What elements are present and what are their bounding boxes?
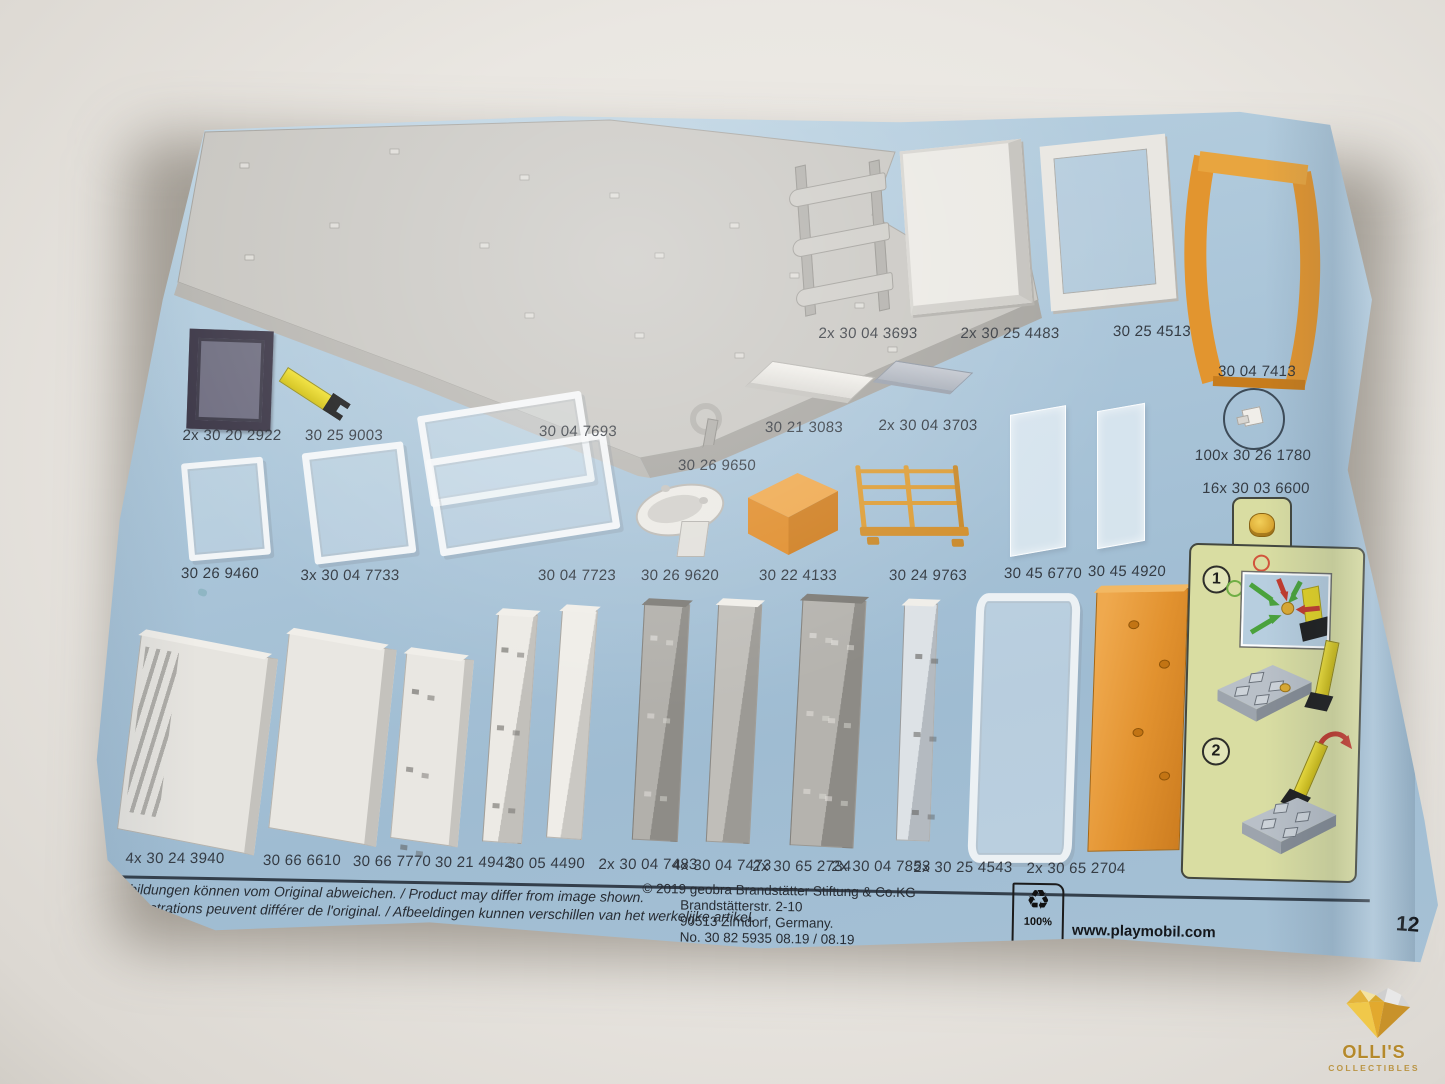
wall-hole bbox=[1132, 728, 1143, 737]
step-2-marker: 2 bbox=[1202, 737, 1231, 766]
part-art-3066-7770 bbox=[390, 651, 474, 848]
part-label-3004-3703: 2x 30 04 3703 bbox=[878, 417, 978, 434]
watermark-title: OLLI'S bbox=[1316, 1042, 1432, 1063]
recycling-symbol: ♻ 100% bbox=[1011, 883, 1064, 946]
wall-hole bbox=[1128, 620, 1139, 629]
part-label-3020-2922: 2x 30 20 2922 bbox=[182, 427, 282, 444]
sink-base bbox=[676, 521, 709, 557]
part-label-3045-4920: 30 45 4920 bbox=[1088, 563, 1167, 580]
clip-marks bbox=[831, 640, 838, 645]
connector-target bbox=[1282, 602, 1294, 614]
pillar-cap bbox=[642, 598, 693, 607]
part-label-3026-9460: 30 26 9460 bbox=[181, 565, 260, 582]
clip-marks bbox=[650, 635, 657, 640]
part-art-3024-9763 bbox=[853, 461, 974, 556]
part-art-3066-6610 bbox=[268, 631, 396, 847]
part-art-3024-3940 bbox=[117, 632, 278, 855]
part-art-3026-9620 bbox=[635, 481, 729, 557]
step-2-base-plate bbox=[1241, 796, 1337, 860]
pillar-cap bbox=[286, 628, 388, 650]
step-2-number: 2 bbox=[1211, 742, 1220, 759]
clip-marks bbox=[501, 647, 508, 652]
part-label-3021-4942: 30 21 4942 bbox=[435, 854, 514, 871]
clip-marks bbox=[412, 689, 419, 695]
step-1-detail-inset bbox=[1241, 572, 1331, 648]
railing-foot bbox=[951, 539, 964, 547]
part-art-3022-4133 bbox=[748, 473, 838, 555]
page-number: 12 bbox=[1395, 912, 1420, 938]
diamond-icon bbox=[1331, 984, 1417, 1042]
sink-faucet-hole bbox=[661, 485, 670, 492]
part-label-3025-9003: 30 25 9003 bbox=[305, 427, 384, 444]
part-label-3026-1780: 100x 30 26 1780 bbox=[1194, 447, 1311, 464]
clip-marks bbox=[915, 654, 922, 659]
watermark-subtitle: COLLECTIBLES bbox=[1316, 1063, 1432, 1073]
part-label-3004-3693: 2x 30 04 3693 bbox=[818, 325, 918, 342]
pillar-cap bbox=[559, 604, 600, 613]
part-art-3026-9460 bbox=[181, 457, 271, 562]
part-art-3026-9650 bbox=[688, 403, 730, 455]
step-1-number: 1 bbox=[1212, 570, 1221, 587]
happy-face-icon bbox=[1226, 580, 1243, 597]
part-label-3045-6770: 30 45 6770 bbox=[1004, 565, 1083, 582]
instruction-sheet-page: 1 bbox=[90, 105, 1438, 970]
pillar-cap bbox=[800, 594, 869, 604]
part-art-3025-4543 bbox=[967, 593, 1080, 863]
part-art-3004-7413 bbox=[1183, 145, 1325, 393]
part-label-3004-7723: 30 04 7723 bbox=[538, 567, 617, 584]
ollis-collectibles-watermark: OLLI'S COLLECTIBLES bbox=[1316, 984, 1432, 1073]
part-art-3065-2704 bbox=[1087, 588, 1188, 851]
part-label-3025-4543: 2x 30 25 4543 bbox=[913, 859, 1013, 876]
part-art-3004-7483 bbox=[632, 602, 690, 842]
part-art-3026-1780 bbox=[1223, 388, 1285, 450]
orange-frame-right bbox=[1295, 173, 1310, 385]
step-1-lever-tool bbox=[1308, 640, 1339, 720]
red-arrow bbox=[1278, 579, 1284, 593]
vent-slats bbox=[125, 646, 179, 817]
part-label-3005-4490: 30 05 4490 bbox=[507, 855, 586, 872]
recycle-percent: 100% bbox=[1014, 915, 1062, 928]
clip-marks bbox=[809, 633, 816, 638]
photo-background: 1 bbox=[0, 0, 1445, 1084]
assembly-instructions-box: 1 bbox=[1181, 543, 1366, 883]
part-art-3025-4513 bbox=[1040, 134, 1177, 312]
stud bbox=[1254, 694, 1270, 705]
part-label-3004-7413: 30 04 7413 bbox=[1218, 363, 1297, 380]
part-label-3025-4513: 30 25 4513 bbox=[1113, 323, 1192, 340]
part-label-3021-3083: 30 21 3083 bbox=[765, 419, 844, 436]
pillar-cap bbox=[1094, 584, 1191, 593]
lever-base bbox=[1304, 692, 1333, 712]
orange-frame-bottom bbox=[1213, 381, 1305, 385]
part-art-3065-2734 bbox=[790, 597, 867, 848]
green-arrow bbox=[1251, 618, 1273, 633]
stud bbox=[1234, 686, 1250, 697]
part-art-3005-4490 bbox=[546, 608, 598, 840]
part-label-3004-7733: 3x 30 04 7733 bbox=[300, 567, 400, 584]
small-part-speck bbox=[197, 588, 208, 598]
hook-foot bbox=[700, 445, 723, 453]
pillar-cap bbox=[716, 598, 765, 607]
part-art-3004-7853 bbox=[896, 602, 938, 841]
pillar-cap bbox=[495, 608, 540, 617]
part-label-3026-9620: 30 26 9620 bbox=[641, 567, 720, 584]
railing-foot bbox=[867, 537, 880, 545]
part-art-3021-4942 bbox=[482, 612, 538, 844]
stud bbox=[1282, 827, 1298, 838]
pillar-cap bbox=[902, 599, 941, 607]
part-art-3025-4483 bbox=[900, 139, 1033, 315]
assembly-count-label: 16x 30 03 6600 bbox=[1202, 480, 1311, 497]
wall-hole bbox=[1159, 771, 1170, 780]
part-label-3004-7693: 30 04 7693 bbox=[539, 423, 618, 440]
part-label-3022-4133: 30 22 4133 bbox=[759, 567, 838, 584]
green-arrow bbox=[1293, 581, 1300, 595]
step-1-detail-art bbox=[1243, 574, 1329, 646]
orange-frame-top bbox=[1199, 161, 1307, 175]
step-1-base-plate bbox=[1217, 664, 1313, 728]
red-arrow bbox=[1304, 608, 1320, 610]
part-art-3004-3693 bbox=[784, 154, 901, 325]
part-label-3065-2704: 2x 30 65 2704 bbox=[1026, 860, 1126, 877]
red-arrow-head bbox=[1280, 591, 1288, 601]
stud bbox=[1261, 818, 1277, 829]
part-art-3004-7473 bbox=[706, 602, 763, 844]
recycle-icon: ♻ bbox=[1014, 886, 1063, 917]
part-label-3024-9763: 30 24 9763 bbox=[889, 567, 968, 584]
part-label-3026-9650: 30 26 9650 bbox=[678, 457, 757, 474]
pillar-cap bbox=[404, 647, 469, 661]
connector-piece-icon bbox=[1249, 513, 1275, 537]
wall-hole bbox=[1159, 660, 1170, 669]
part-art-3045-4920 bbox=[1097, 403, 1145, 549]
footer-copyright-block: © 2019 geobra Brandstätter Stiftung & Co… bbox=[642, 881, 916, 949]
part-art-3045-6770 bbox=[1010, 405, 1066, 557]
railing-base bbox=[860, 527, 970, 536]
red-arrow-head bbox=[1296, 605, 1305, 615]
part-label-3066-6610: 30 66 6610 bbox=[263, 852, 342, 869]
sad-face-icon bbox=[1253, 554, 1270, 571]
green-arrow-head bbox=[1268, 595, 1280, 606]
part-label-3066-7770: 30 66 7770 bbox=[353, 853, 432, 870]
part-label-3024-3940: 4x 30 24 3940 bbox=[125, 850, 225, 867]
stud bbox=[1248, 672, 1264, 683]
sink-faucet-hole bbox=[699, 497, 708, 504]
part-label-3025-4483: 2x 30 25 4483 bbox=[960, 325, 1060, 342]
part-art-3004-7733 bbox=[302, 441, 417, 565]
orange-frame-left bbox=[1195, 157, 1213, 381]
